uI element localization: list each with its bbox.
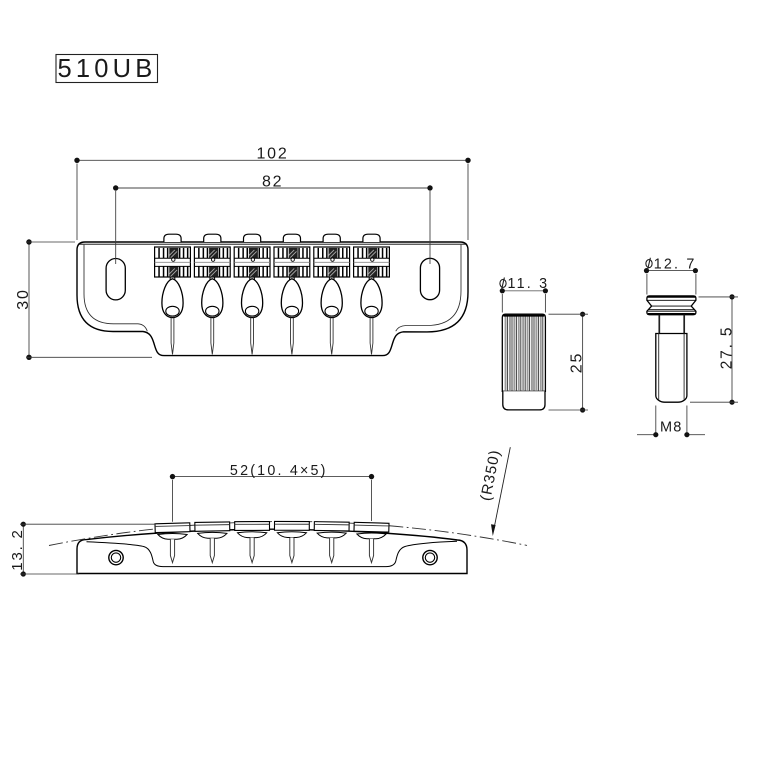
svg-text:102: 102 <box>256 146 288 163</box>
svg-text:13. 2: 13. 2 <box>9 528 26 570</box>
svg-text:82: 82 <box>262 173 283 190</box>
svg-text:52(10. 4×5): 52(10. 4×5) <box>230 463 328 479</box>
svg-text:M8: M8 <box>660 419 683 435</box>
svg-text:11. 3: 11. 3 <box>508 276 550 292</box>
svg-text:30: 30 <box>15 288 32 309</box>
svg-text:12. 7: 12. 7 <box>654 256 697 272</box>
svg-text:510UB: 510UB <box>58 55 157 83</box>
svg-text:27. 5: 27. 5 <box>718 326 735 369</box>
svg-text:25: 25 <box>568 352 585 373</box>
